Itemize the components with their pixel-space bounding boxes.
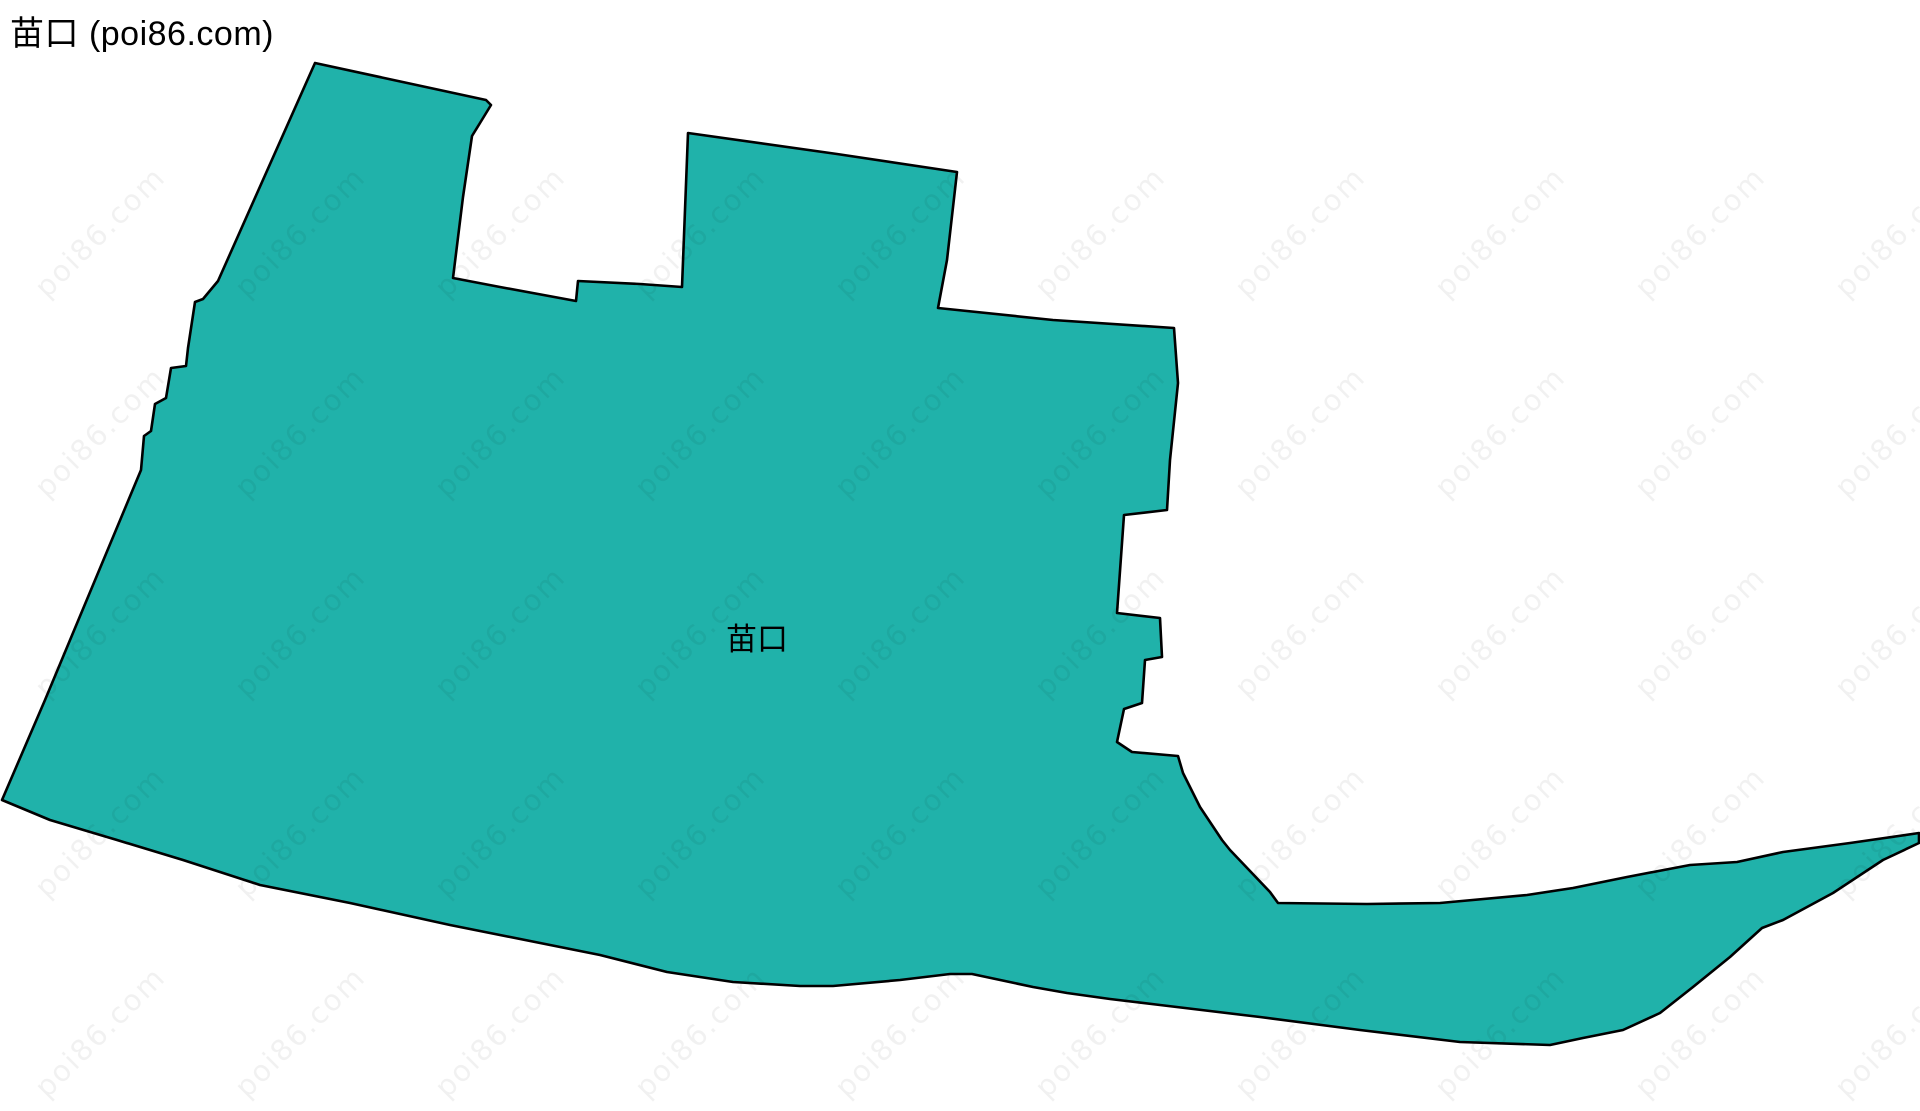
region-polygon [2,63,1919,1045]
page-title: 苗口 (poi86.com) [10,6,274,55]
map-canvas: 苗口 poi86.compoi86.compoi86.compoi86.comp… [0,0,1920,1111]
region-map-svg: 苗口 [0,0,1920,1111]
region-label: 苗口 [726,622,788,657]
